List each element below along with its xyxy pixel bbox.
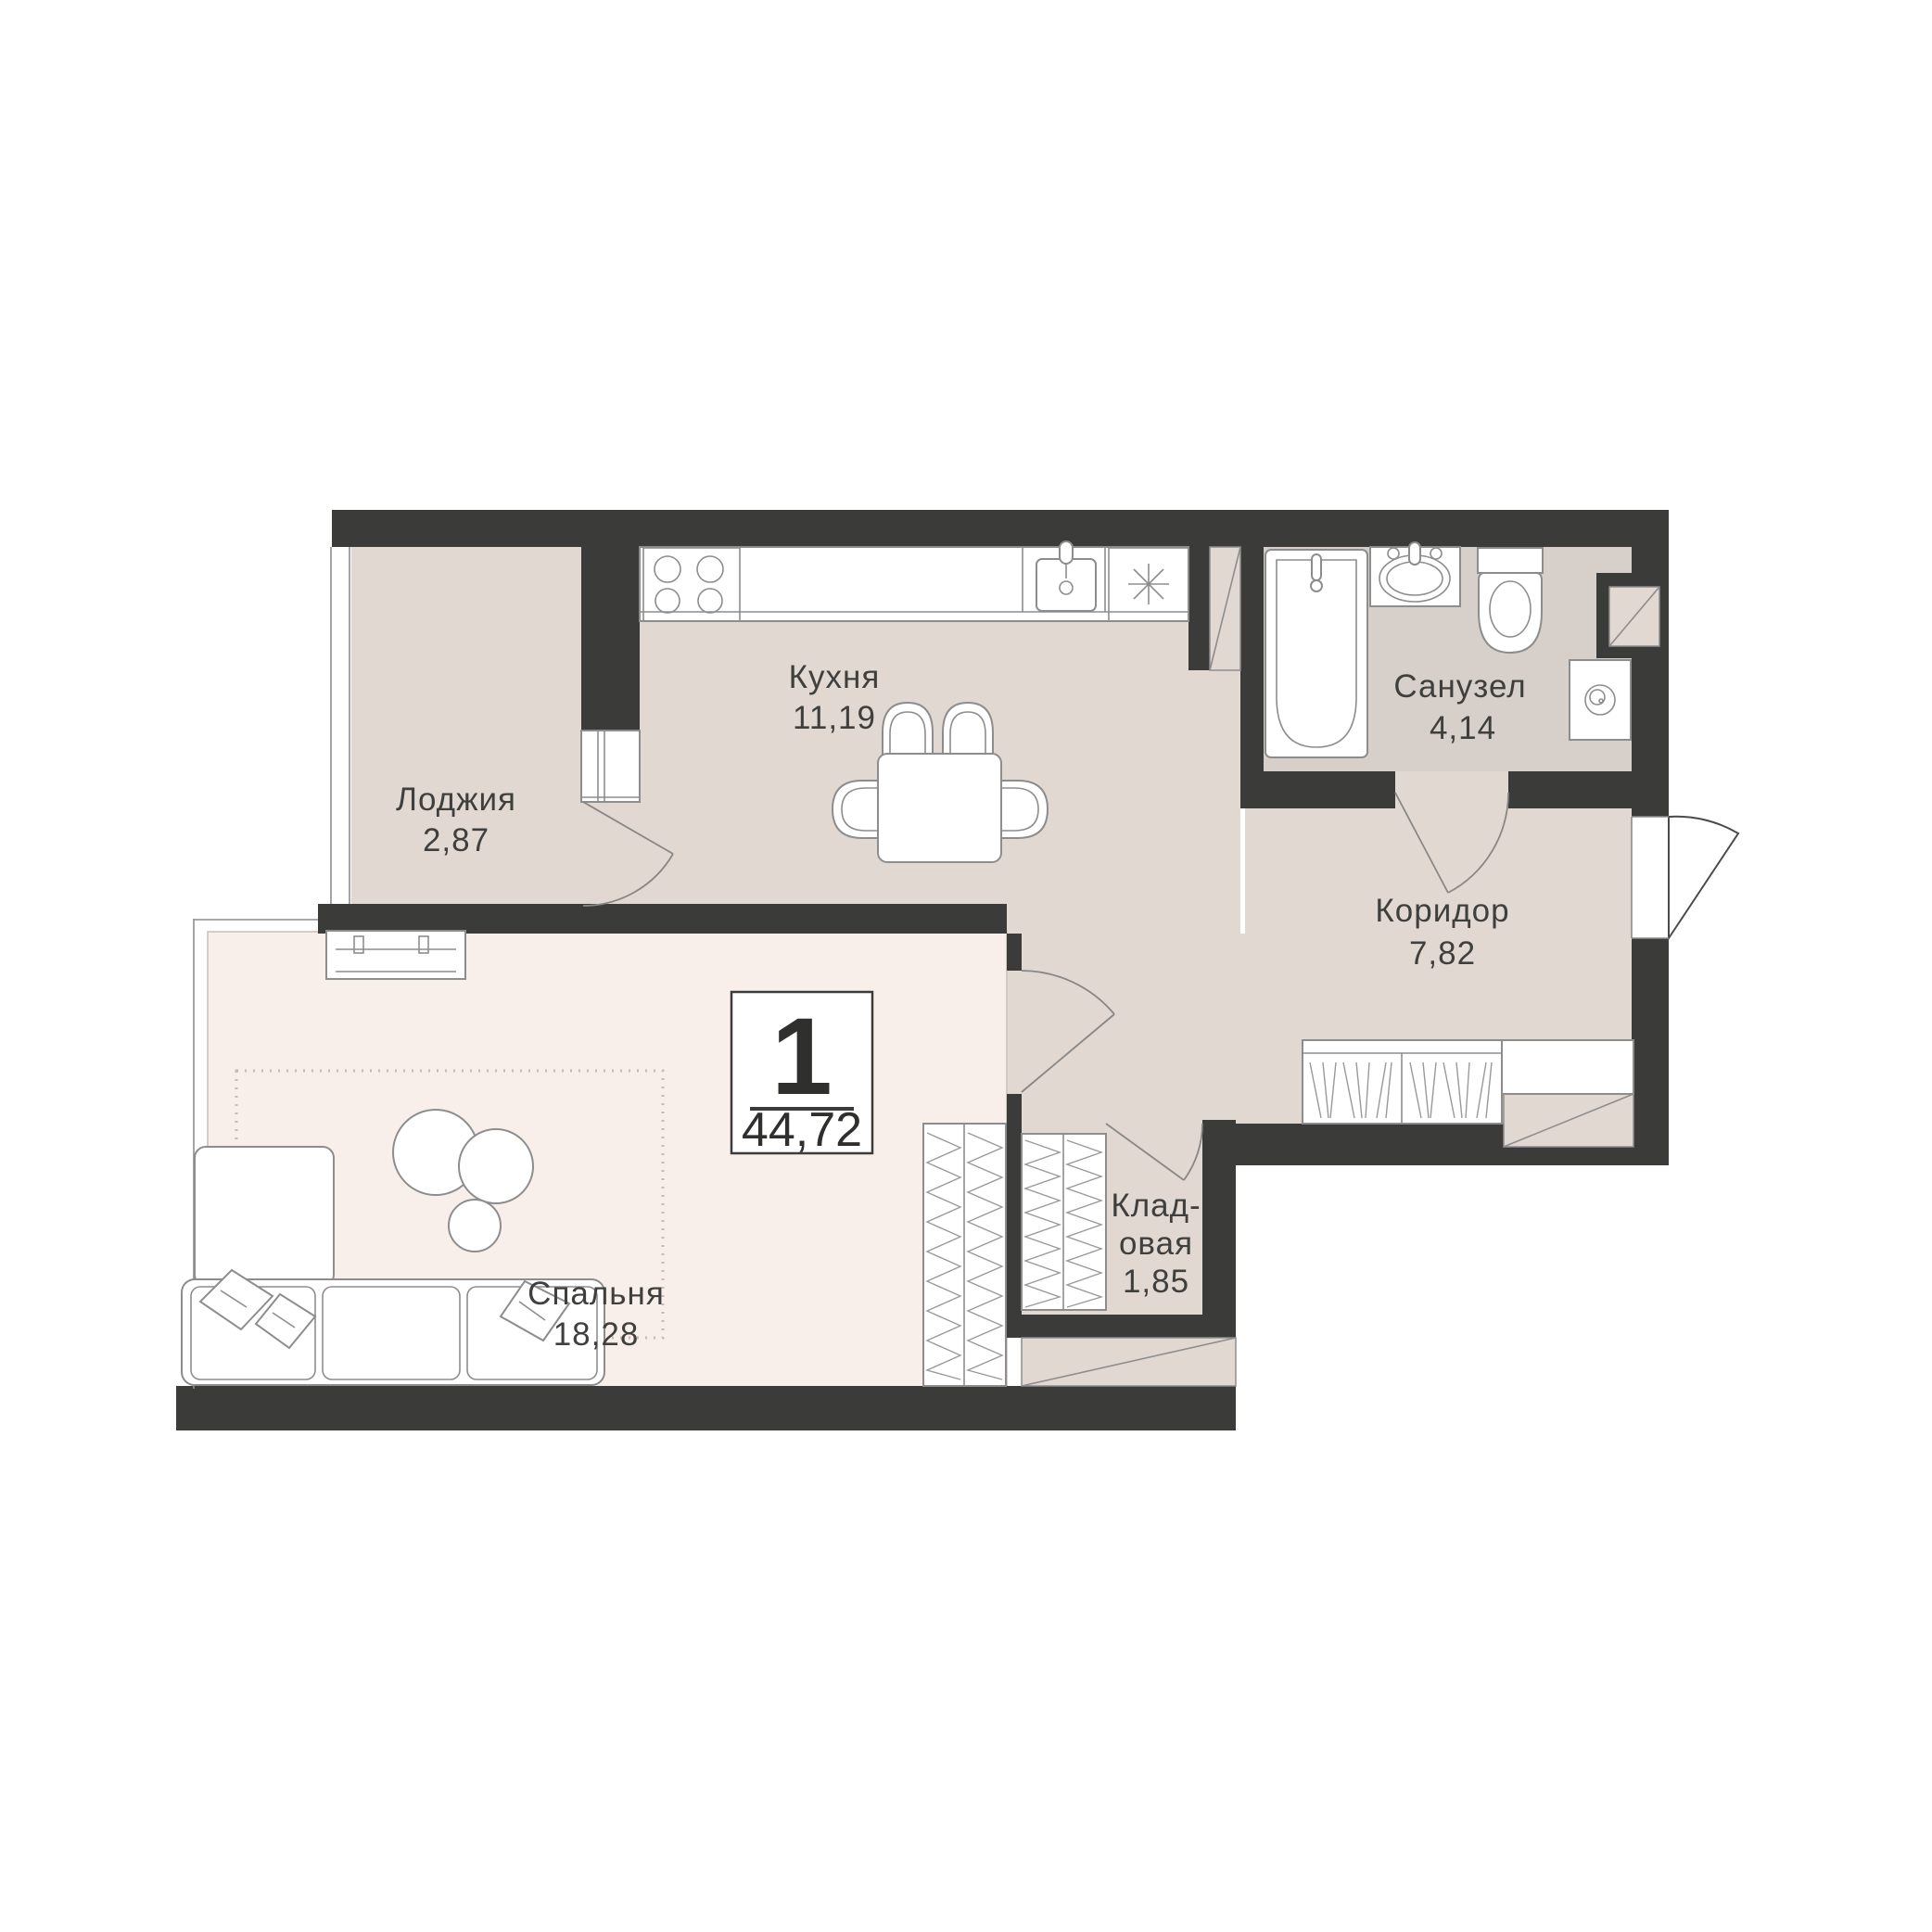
entrance-door [1632,817,1738,938]
washing-machine [1570,660,1631,740]
area-badge: 1 44,72 [731,992,872,1157]
corridor-label: Коридор [1375,893,1509,929]
wall-bathroom-bottom-right [1508,771,1632,808]
wall-bedroom-door-jamb-top [1007,934,1022,971]
tv-stand [326,931,465,979]
balcony-window-unit [581,731,640,802]
wall-bedroom-storage-left [1007,1094,1022,1338]
storage-wardrobe [1022,1134,1106,1310]
corridor-area: 7,82 [1409,935,1476,972]
floor-plan: Кухня 11,19 Лоджия 2,87 Санузел 4,14 Кор… [0,0,1932,1932]
balcony-doorway-floor [581,797,640,904]
badge-total-area: 44,72 [742,1103,862,1157]
storage-label-line2: овая [1119,1226,1193,1262]
loggia-area: 2,87 [423,822,489,858]
vent-shaft-corridor [1504,1094,1633,1147]
wall-top [332,510,1669,547]
wall-right-upper [1632,510,1669,817]
wall-loggia-divider [581,547,640,731]
kitchen-area: 11,19 [793,700,876,736]
vent-shaft-kitchen [1210,547,1240,670]
loggia-window [329,547,351,904]
kitchen-counter [640,547,1188,621]
sofa-chaise [195,1147,334,1286]
wall-bedroom-bottom [176,1386,1236,1430]
wall-bathroom-left [1240,510,1264,808]
vent-shaft-storage [1022,1338,1236,1386]
wall-storage-bottom [1007,1315,1236,1338]
bathroom-label: Санузел [1393,668,1526,705]
loggia-label: Лоджия [396,782,516,818]
badge-room-count: 1 [771,996,833,1118]
floor-plan-page: Кухня 11,19 Лоджия 2,87 Санузел 4,14 Кор… [0,0,1932,1932]
wall-bedroom-top [318,904,1007,934]
bathroom-area: 4,14 [1430,710,1496,746]
corridor-cabinet [1502,1040,1633,1094]
vent-shaft-bathroom [1609,587,1659,646]
corridor-funnel-floor [1007,934,1245,1128]
bedroom-wardrobe [923,1124,1006,1386]
toilet [1478,548,1543,653]
dining-table [878,754,1001,862]
bedroom-area: 18,28 [553,1316,640,1353]
wall-bathroom-bottom-left [1245,771,1395,808]
bathroom-sink [1370,542,1460,606]
bedroom-label: Спальня [527,1276,665,1312]
storage-label-line1: Клад- [1111,1188,1201,1224]
kitchen-label: Кухня [789,659,881,695]
storage-area: 1,85 [1123,1264,1189,1300]
bathtub [1265,550,1367,757]
wall-kitchen-right-stub [1188,510,1210,670]
